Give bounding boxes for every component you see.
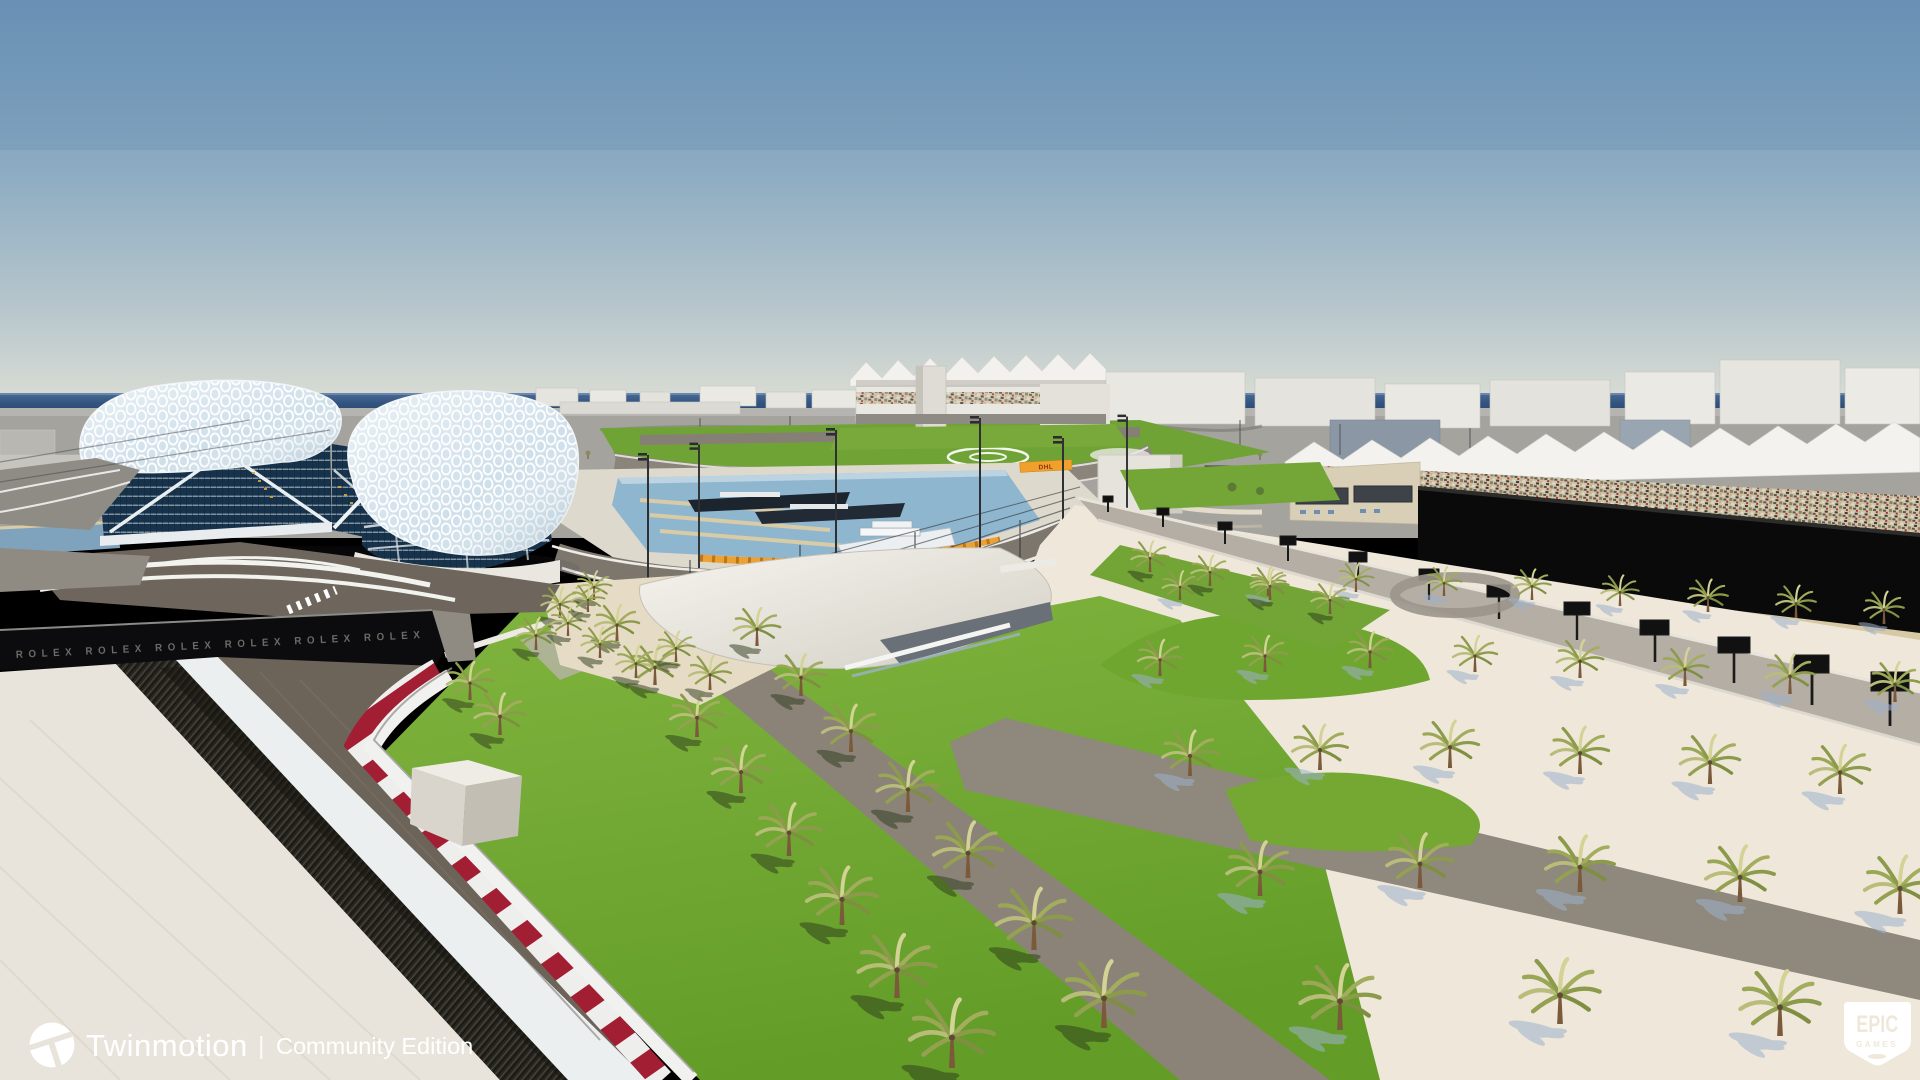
svg-text:DHL: DHL [1038,464,1053,472]
watermark-brand: Twinmotion [86,1028,248,1063]
twinmotion-logo-icon [30,1023,75,1068]
render-viewport: DHL [0,0,1920,1080]
scene-canvas: DHL [0,0,1920,1080]
watermark-edition: Community Edition [276,1033,473,1059]
watermark-divider: | [258,1032,265,1060]
sky [0,0,1920,400]
